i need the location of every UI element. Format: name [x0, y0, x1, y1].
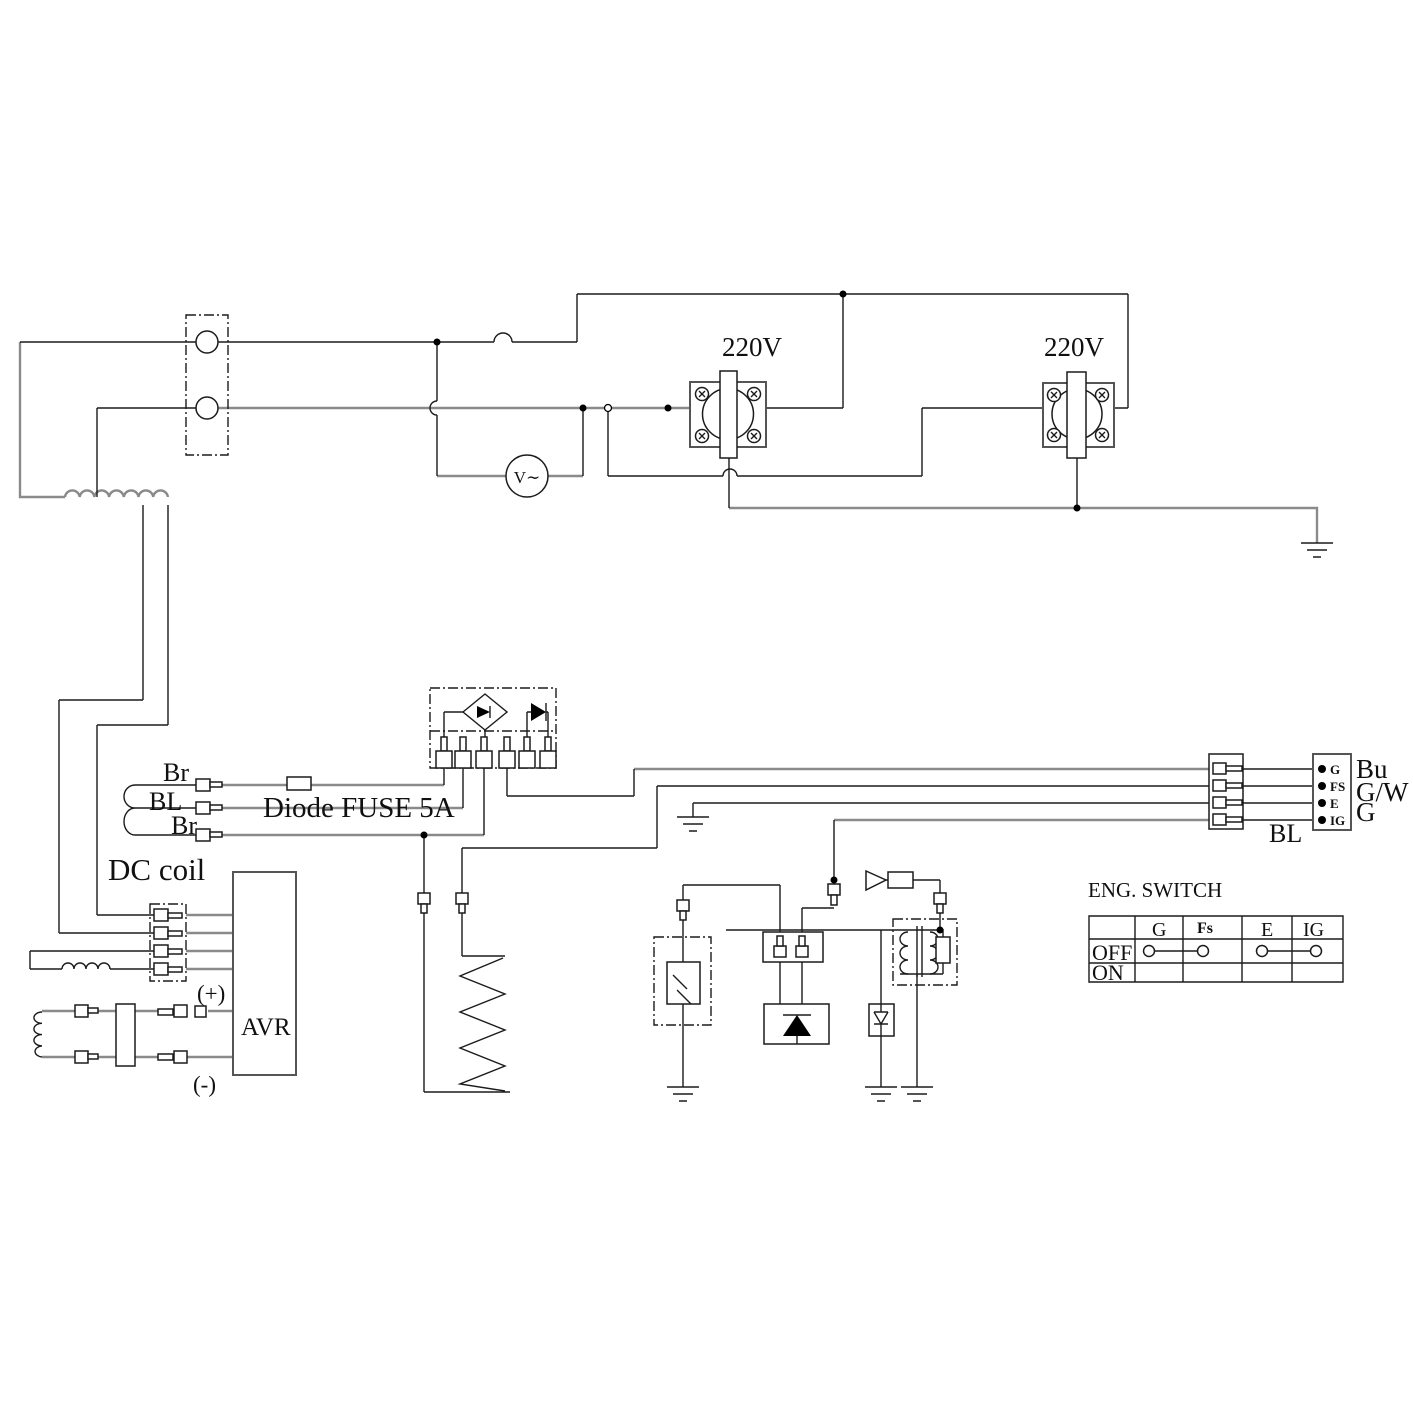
breaker-connector	[186, 315, 228, 455]
outlet-slot	[720, 371, 737, 458]
wire-color-g: G	[1356, 797, 1376, 827]
ground-ign-coil	[901, 1087, 933, 1101]
dc-connector-pins	[154, 909, 182, 975]
outlet-left-label: 220V	[722, 332, 783, 362]
wire-label-br-bottom: Br	[171, 811, 197, 840]
avr-assembly: AVR (+) (-)	[75, 872, 296, 1097]
off-contacts	[1144, 946, 1322, 957]
diode-icon	[531, 703, 546, 721]
avr-plus-label: (+)	[197, 981, 225, 1006]
outlet-slot	[1067, 372, 1086, 458]
wire-label-br-top: Br	[163, 758, 189, 787]
core-lines	[917, 926, 922, 977]
coil-resistor	[936, 937, 950, 963]
col-e: E	[1261, 919, 1273, 941]
pin-label-ig: IG	[1330, 813, 1345, 828]
eng-switch-table: ENG. SWITCH G Fs E IG OFF ON	[1088, 878, 1343, 985]
wire-color-bl: BL	[1269, 819, 1302, 848]
open-terminal	[605, 405, 612, 412]
ground-main	[1301, 543, 1333, 557]
outlet-right-label: 220V	[1044, 332, 1105, 362]
wire-hop-2	[723, 469, 737, 476]
main-stator-coil	[65, 490, 168, 497]
outlet-220v-right: 220V	[1043, 332, 1114, 458]
harness-connector: G FS E IG Bu G/W G BL	[1209, 754, 1409, 848]
outlet-220v-left: 220V	[690, 332, 783, 458]
wire-splice-bump	[494, 333, 512, 342]
pin-label-fs: FS	[1330, 779, 1345, 794]
dc-coil-winding	[124, 785, 135, 835]
avr-label: AVR	[241, 1014, 291, 1041]
fuse-body	[287, 777, 311, 790]
eng-switch-title: ENG. SWITCH	[1088, 878, 1222, 902]
sense-coil	[62, 963, 110, 969]
voltmeter: V∼	[506, 455, 548, 497]
zigzag-element	[460, 958, 505, 1091]
avr-minus-label: (-)	[193, 1072, 216, 1097]
wiring-diagram: V∼ 220V 220V	[0, 0, 1413, 1413]
col-ig: IG	[1303, 919, 1324, 941]
brush-holder	[116, 1004, 135, 1066]
pin-label-g: G	[1330, 762, 1340, 777]
pin-label-e: E	[1330, 796, 1339, 811]
voltmeter-label: V∼	[514, 468, 541, 487]
fuse-label: Diode FUSE 5A	[263, 792, 455, 824]
cdi-unit	[763, 932, 829, 1044]
rectifier-pins	[436, 737, 556, 768]
lead-pins	[196, 779, 222, 841]
rectifier-unit	[430, 688, 556, 768]
junction-dots	[421, 291, 1081, 934]
field-coil-pins	[75, 1005, 206, 1063]
series-diode-icon	[866, 871, 886, 890]
series-resistor	[888, 872, 913, 888]
ground-zener	[865, 1087, 897, 1101]
bridge-diode-icon	[477, 706, 490, 718]
ignition-chain	[828, 871, 957, 1036]
terminal-circle-2	[196, 397, 218, 419]
row-on: ON	[1092, 960, 1124, 985]
ground-charge-coil	[667, 1087, 699, 1101]
exciter-coil	[34, 1012, 42, 1057]
col-fs: Fs	[1197, 920, 1213, 937]
col-g: G	[1152, 919, 1166, 941]
primary-winding	[900, 932, 908, 974]
avr-box	[233, 872, 296, 1075]
dc-coil-label: DC coil	[108, 852, 205, 887]
terminal-circle-1	[196, 331, 218, 353]
ground-e-wire	[677, 817, 709, 831]
coil-leads: Br BL Br Diode FUSE 5A DC coil	[108, 758, 455, 887]
